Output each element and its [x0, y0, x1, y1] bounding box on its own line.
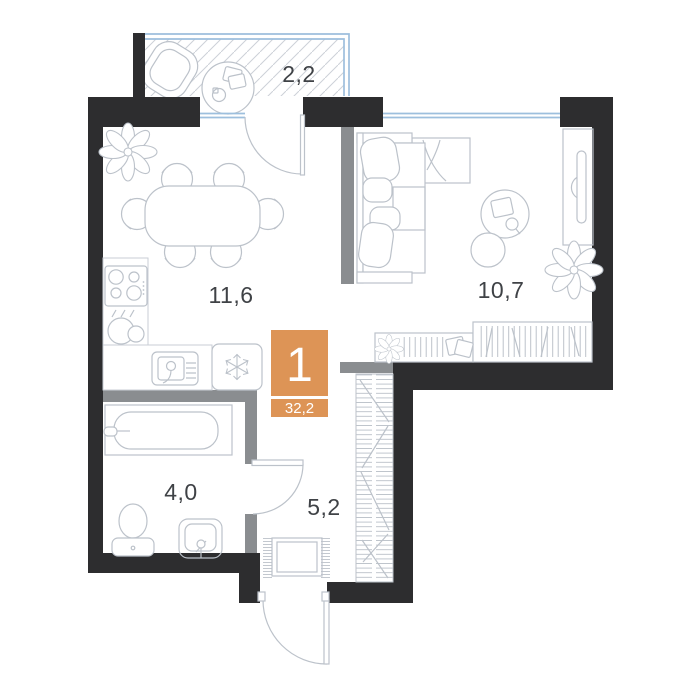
doormat-fringe [263, 536, 272, 578]
living-room-area-label: 10,7 [478, 277, 525, 303]
bathtub [104, 405, 232, 455]
living-room: 10,7 [357, 129, 603, 364]
bathtub-faucet [104, 427, 117, 436]
bathroom-door-swing-arc [253, 464, 303, 514]
flower-icon [545, 241, 603, 299]
pouf [471, 233, 505, 267]
flower-icon [375, 335, 404, 364]
books [402, 337, 445, 359]
hallway-area-label: 5,2 [307, 494, 340, 520]
dining-table [145, 186, 260, 246]
bathroom-door [252, 460, 303, 514]
floor-plan-canvas: 2,2 [0, 0, 700, 700]
tv-unit [563, 129, 593, 245]
washbasin [179, 519, 222, 558]
bathroom-door-leaf [252, 460, 303, 466]
unit-badge[interactable]: 1 32,2 [271, 330, 328, 417]
tv-screen [577, 151, 586, 223]
balcony-door-swing-arc [245, 117, 302, 174]
doormat [263, 536, 330, 578]
kitchen-area-label: 11,6 [208, 282, 253, 308]
bathroom: 4,0 [104, 405, 232, 558]
wardrobe [356, 374, 393, 582]
entrance-door-jamb-left [258, 592, 265, 601]
balcony-area-label: 2,2 [282, 61, 315, 87]
entrance-door-leaf [324, 600, 329, 664]
sofa [357, 133, 470, 283]
shelf-unit [375, 322, 593, 364]
balcony-table [202, 62, 254, 114]
coffee-table [481, 190, 529, 238]
entrance-door [258, 592, 329, 664]
fridge [212, 344, 262, 390]
snowflake-icon [224, 354, 250, 380]
balcony-door-leaf [301, 115, 305, 175]
unit-rooms-count: 1 [286, 339, 313, 392]
stove [105, 266, 147, 306]
exterior-walls [88, 33, 613, 603]
entrance-door-swing-arc [263, 600, 327, 664]
toilet [112, 504, 154, 556]
kitchen-sink [152, 352, 198, 385]
shelf-box [454, 339, 473, 357]
stove-controls [143, 281, 145, 295]
basin-faucet [197, 540, 205, 548]
bathroom-area-label: 4,0 [164, 479, 197, 505]
kitchen-dining-room: 11,6 [99, 123, 284, 390]
balcony-door [245, 115, 305, 175]
balcony-side-wall [133, 33, 145, 97]
flower-icon [99, 123, 157, 181]
entrance-door-jamb-right [322, 592, 329, 601]
unit-total-area: 32,2 [285, 400, 314, 417]
floor-plan: 2,2 [0, 0, 700, 700]
kitchen-washbasin [108, 310, 144, 344]
